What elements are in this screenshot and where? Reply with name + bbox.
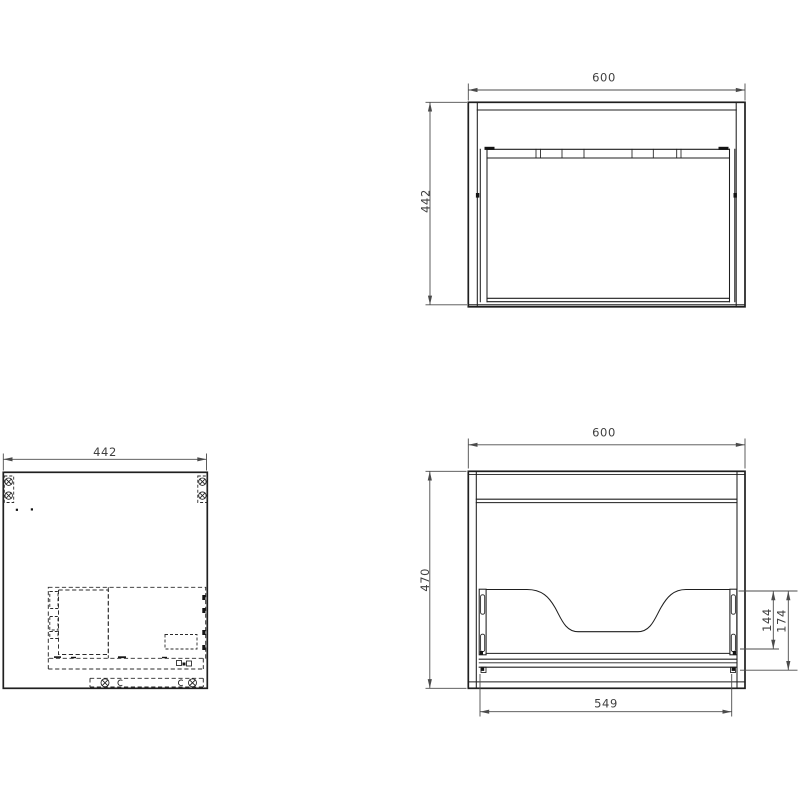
dim-label-side-depth: 442 <box>93 445 117 459</box>
back-panel-cutout <box>487 590 730 632</box>
top-view-drawer-frame <box>476 147 737 302</box>
dim-label-rail-offset: 174 <box>774 609 788 633</box>
drawer-slide-right <box>730 589 737 671</box>
dim-slide-heights: 144 174 <box>739 591 798 670</box>
dowel-mark-2 <box>31 508 33 510</box>
bottom-rail-hidden <box>48 658 203 669</box>
dim-label-front-width: 600 <box>592 425 616 439</box>
dim-side-depth: 442 <box>3 445 206 471</box>
side-panel-outline <box>3 472 207 688</box>
dim-label-top-depth: 442 <box>418 189 432 213</box>
view-side-panel: 442 <box>3 445 207 689</box>
cam-fitting-right <box>734 193 737 198</box>
dim-front-inner-width: 549 <box>480 674 732 717</box>
foot-strip-hidden <box>90 678 203 687</box>
view-top-panel: 600 442 <box>418 71 745 307</box>
hinge-plate-top-left <box>4 476 13 503</box>
dowel-mark-1 <box>16 509 18 511</box>
frame-corner-bracket-right <box>719 147 729 150</box>
top-view-carcass-outline <box>468 102 745 306</box>
drawer-slide-hidden-outline <box>48 587 205 666</box>
frame-corner-bracket-left <box>485 147 495 150</box>
cam-fitting-left <box>476 193 479 198</box>
front-carcass-outline <box>468 471 745 688</box>
dim-top-width: 600 <box>468 71 745 101</box>
view-front-carcass: 600 470 549 144 <box>418 425 797 716</box>
dim-label-slide-height: 144 <box>760 608 774 632</box>
dim-label-top-width: 600 <box>592 71 616 85</box>
drawer-slide-left <box>479 589 486 671</box>
bottom-rail <box>479 653 737 672</box>
slide-release-clip <box>177 661 192 667</box>
cabinet-drawing-svg: 600 442 442 <box>0 0 800 800</box>
dim-front-width: 600 <box>468 425 745 468</box>
dim-label-front-height: 470 <box>418 568 432 592</box>
technical-drawing-canvas: 600 442 442 <box>0 0 800 800</box>
dim-top-depth: 442 <box>418 102 467 304</box>
dim-label-front-inner-width: 549 <box>594 697 618 711</box>
hinge-plate-top-right <box>198 476 207 503</box>
dim-front-height: 470 <box>418 471 466 688</box>
top-view-rail-segments <box>536 149 681 158</box>
